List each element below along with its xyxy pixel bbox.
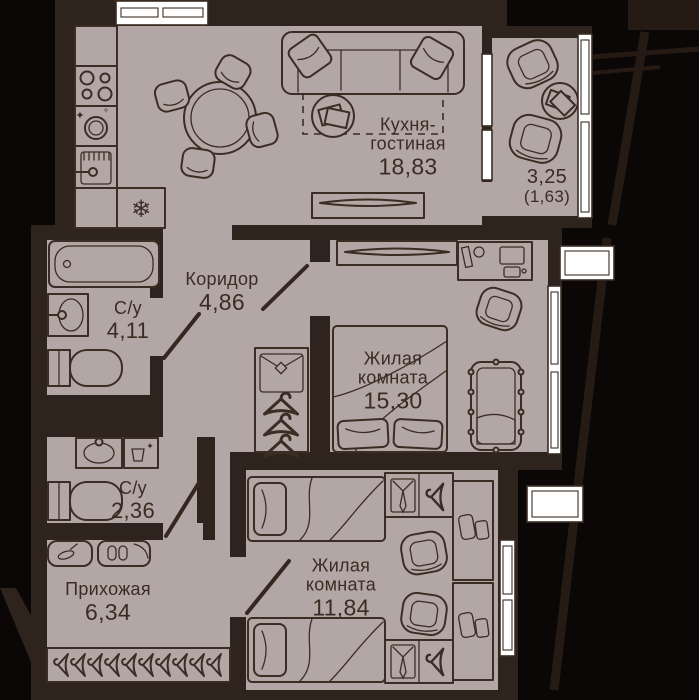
room-area: 11,84 <box>306 596 376 620</box>
desk-chair <box>399 529 449 576</box>
vanity-sink-icon <box>76 438 122 468</box>
room-label-kitchen-living: Кухня- гостиная 18,83 <box>370 116 446 179</box>
window-balcony-partition <box>482 54 492 126</box>
snowflake-icon: ❄ <box>131 195 151 223</box>
window-balcony-glazing <box>578 34 592 218</box>
sparkle-icon: ✦ <box>75 109 84 122</box>
room-area-secondary: (1,63) <box>524 188 570 206</box>
room-area: 6,34 <box>65 600 151 624</box>
room-name: Жилая <box>306 557 376 576</box>
room-label-bedroom-1: Жилая комната 15,30 <box>358 350 428 413</box>
window-bedroom-2 <box>500 540 515 656</box>
bathtub-icon <box>49 241 159 287</box>
bathroom-sink-icon <box>48 294 88 336</box>
room-name: комната <box>306 576 376 595</box>
tv-console-bedroom-1 <box>337 241 457 265</box>
toilet-icon <box>48 350 122 386</box>
washing-machine-icon: ✦ <box>124 438 158 468</box>
room-name: Прихожая <box>65 580 151 599</box>
room-area: 18,83 <box>370 155 446 179</box>
hallway-wardrobe <box>47 648 230 682</box>
room-area: 15,30 <box>358 389 428 413</box>
room-area: 4,86 <box>185 290 258 314</box>
room-name: гостиная <box>370 135 446 154</box>
room-label-bedroom-2: Жилая комната 11,84 <box>306 557 376 620</box>
room-area: 2,36 <box>111 499 155 523</box>
window-balcony-partition <box>482 130 492 180</box>
crib-icon <box>469 360 524 453</box>
window-bedroom-1 <box>548 286 561 454</box>
room-label-hallway: Прихожая 6,34 <box>65 580 151 624</box>
window-kitchen <box>116 1 208 25</box>
desk-chair <box>399 591 448 637</box>
room-name: С/у <box>111 479 155 498</box>
coffee-table <box>312 95 354 137</box>
corridor-wardrobe <box>255 348 308 456</box>
shoe-cabinet <box>98 541 150 566</box>
single-bed <box>248 477 385 541</box>
balcony-table <box>542 83 578 119</box>
sofa <box>282 32 464 94</box>
room-area: 4,11 <box>107 319 149 343</box>
room-name: С/у <box>107 299 149 318</box>
floor-plan: ✦ ✧ ❄ <box>0 0 699 700</box>
hallway-bench <box>48 541 92 566</box>
stove-icon <box>75 66 117 106</box>
wardrobe <box>385 473 453 517</box>
desk-bedroom-1 <box>458 242 532 280</box>
room-label-balcony: 3,25 (1,63) <box>524 166 570 206</box>
room-area: 3,25 <box>524 167 570 188</box>
room-label-bathroom-2: С/у 2,36 <box>111 479 155 523</box>
sparkle-icon: ✦ <box>146 442 154 452</box>
desk <box>453 481 493 580</box>
single-bed <box>248 618 385 682</box>
room-name: Жилая <box>358 350 428 369</box>
room-name: Кухня- <box>370 116 446 135</box>
room-label-corridor: Коридор 4,86 <box>185 270 258 314</box>
room-name: комната <box>358 369 428 388</box>
room-name: Коридор <box>185 270 258 289</box>
room-label-bathroom-1: С/у 4,11 <box>107 299 149 343</box>
desk <box>453 583 493 680</box>
wardrobe <box>385 640 453 683</box>
tv-console-kitchen <box>312 193 424 218</box>
sparkle-icon: ✧ <box>103 106 110 115</box>
